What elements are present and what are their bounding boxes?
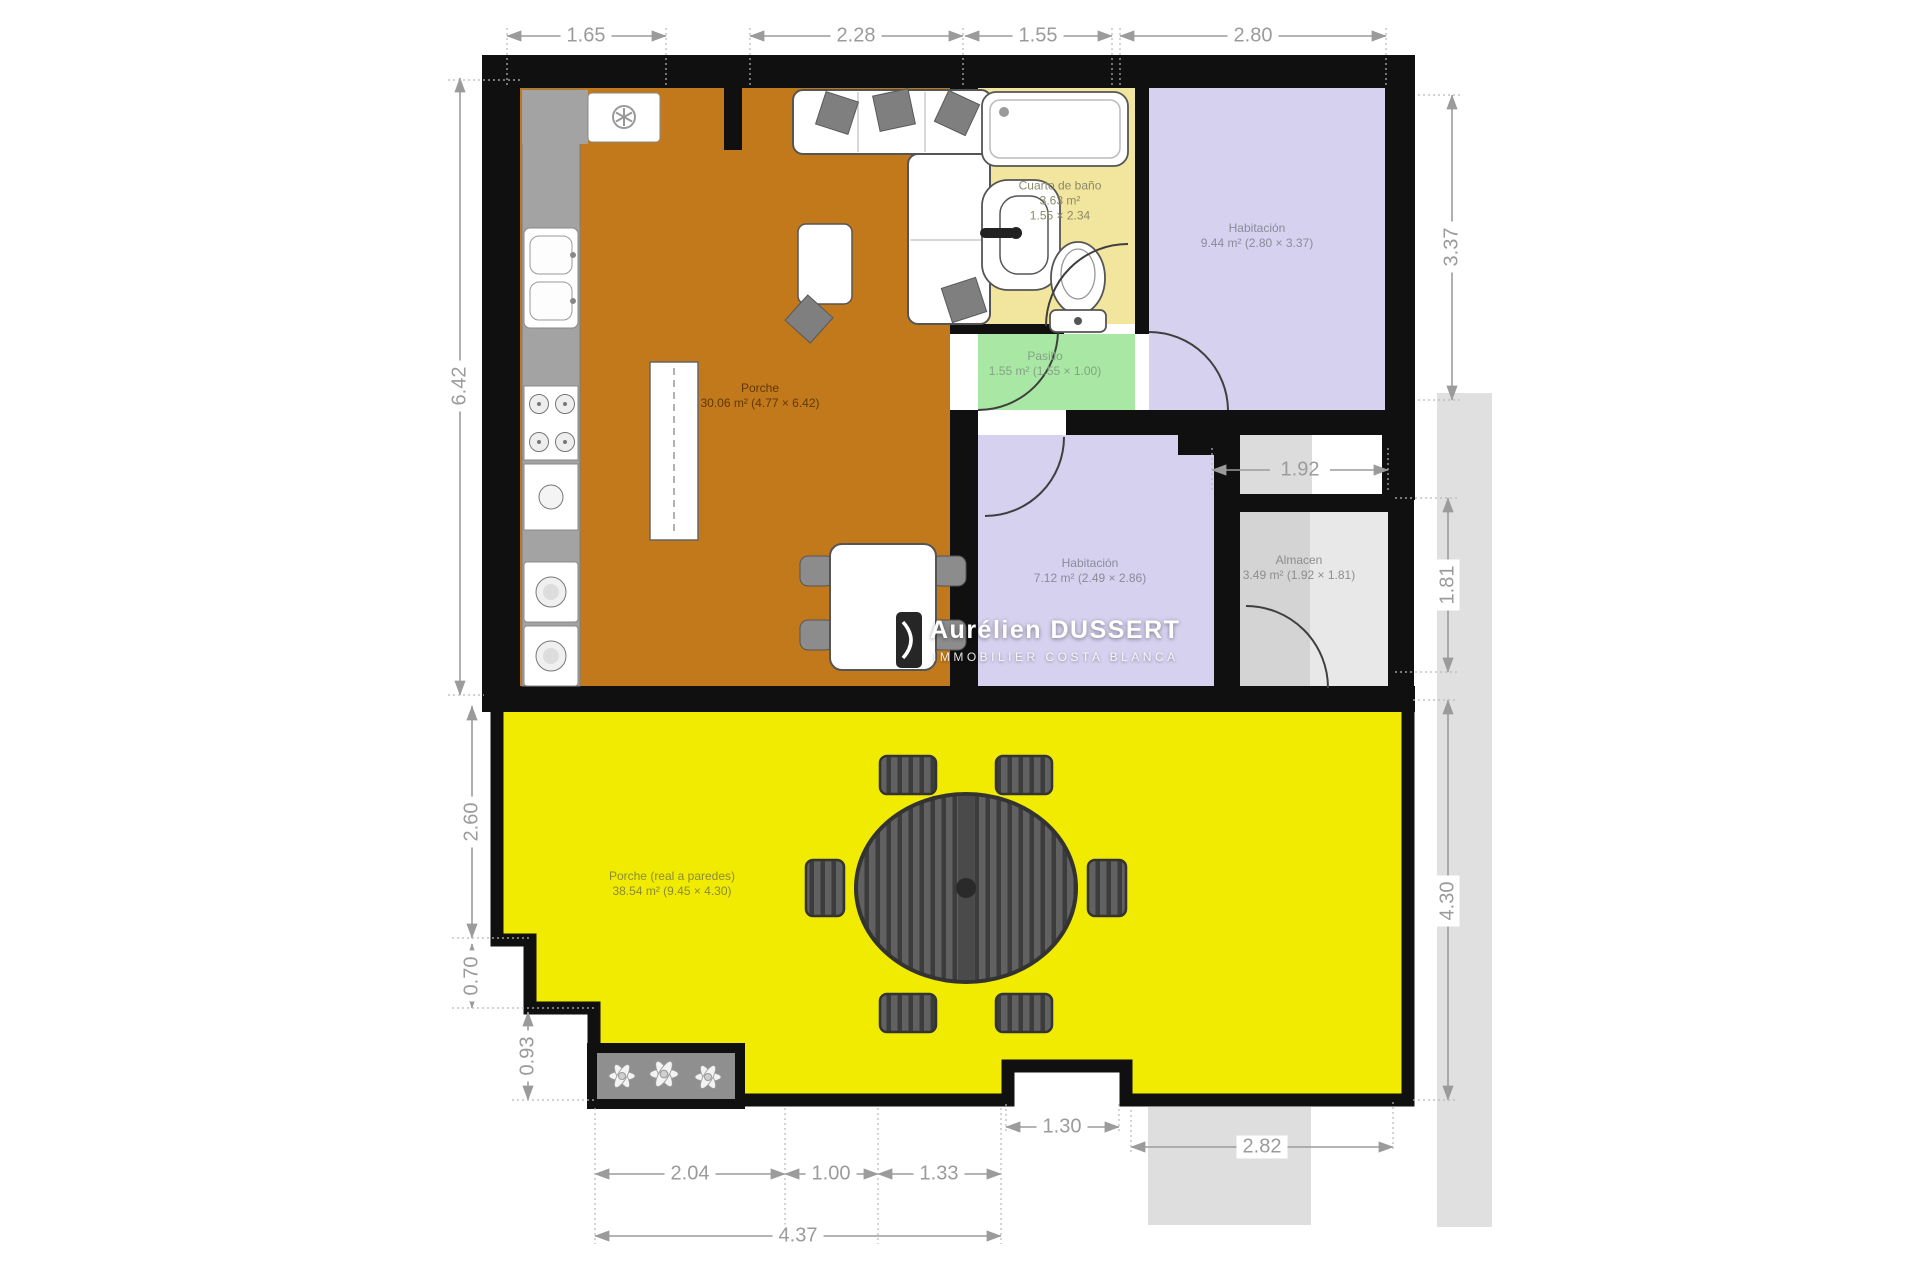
bedroom2-name: Habitación bbox=[1034, 556, 1146, 571]
label-almacen: Almacen 3.49 m² (1.92 × 1.81) bbox=[1243, 553, 1355, 583]
terrace-name: Porche (real a paredes) bbox=[609, 869, 735, 884]
dim-bottom-5: 1.30 bbox=[1037, 1116, 1088, 1139]
dim-right-1: 3.37 bbox=[1441, 222, 1464, 273]
salon-name: Porche bbox=[700, 381, 819, 396]
dim-right-3: 1.81 bbox=[1437, 560, 1460, 611]
bathroom-area: 3.63 m² bbox=[1019, 194, 1102, 209]
label-terrace: Porche (real a paredes) 38.54 m² (9.45 ×… bbox=[609, 869, 735, 899]
bedroom1-detail: 9.44 m² (2.80 × 3.37) bbox=[1201, 236, 1313, 251]
bathroom-size: 1.55 × 2.34 bbox=[1019, 209, 1102, 224]
dim-right-4: 4.30 bbox=[1437, 876, 1460, 927]
pasillo-detail: 1.55 m² (1.55 × 1.00) bbox=[989, 364, 1101, 379]
watermark-subtitle: IMMOBILIER COSTA BLANCA bbox=[933, 650, 1179, 664]
salon-detail: 30.06 m² (4.77 × 6.42) bbox=[700, 396, 819, 411]
bedroom1-name: Habitación bbox=[1201, 221, 1313, 236]
label-bathroom: Cuarto de baño 3.63 m² 1.55 × 2.34 bbox=[1019, 179, 1102, 224]
almacen-name: Almacen bbox=[1243, 553, 1355, 568]
label-bedroom2: Habitación 7.12 m² (2.49 × 2.86) bbox=[1034, 556, 1146, 586]
dim-left-3: 0.70 bbox=[461, 951, 484, 1002]
bedroom2-detail: 7.12 m² (2.49 × 2.86) bbox=[1034, 571, 1146, 586]
label-bedroom1: Habitación 9.44 m² (2.80 × 3.37) bbox=[1201, 221, 1313, 251]
dim-bottom-4: 4.37 bbox=[773, 1225, 824, 1248]
dim-bottom-2: 1.00 bbox=[806, 1163, 857, 1186]
label-pasillo: Pasillo 1.55 m² (1.55 × 1.00) bbox=[989, 349, 1101, 379]
dim-bottom-1: 2.04 bbox=[665, 1163, 716, 1186]
dim-top-3: 1.55 bbox=[1013, 25, 1064, 48]
dim-top-1: 1.65 bbox=[561, 25, 612, 48]
dim-bottom-3: 1.33 bbox=[914, 1163, 965, 1186]
dim-top-4: 2.80 bbox=[1228, 25, 1279, 48]
watermark-title: Aurélien DUSSERT bbox=[930, 616, 1180, 645]
almacen-detail: 3.49 m² (1.92 × 1.81) bbox=[1243, 568, 1355, 583]
dim-left-2: 2.60 bbox=[461, 797, 484, 848]
labels-layer: Porche 30.06 m² (4.77 × 6.42) Cuarto de … bbox=[0, 0, 1920, 1280]
dim-right-2: 1.92 bbox=[1281, 459, 1320, 482]
terrace-detail: 38.54 m² (9.45 × 4.30) bbox=[609, 884, 735, 899]
bathroom-name: Cuarto de baño bbox=[1019, 179, 1102, 194]
dim-left-4: 0.93 bbox=[517, 1031, 540, 1082]
floor-plan: Porche 30.06 m² (4.77 × 6.42) Cuarto de … bbox=[0, 0, 1920, 1280]
label-salon: Porche 30.06 m² (4.77 × 6.42) bbox=[700, 381, 819, 411]
dim-left-1: 6.42 bbox=[449, 361, 472, 412]
dim-bottom-6: 2.82 bbox=[1237, 1136, 1288, 1159]
dim-top-2: 2.28 bbox=[831, 25, 882, 48]
pasillo-name: Pasillo bbox=[989, 349, 1101, 364]
